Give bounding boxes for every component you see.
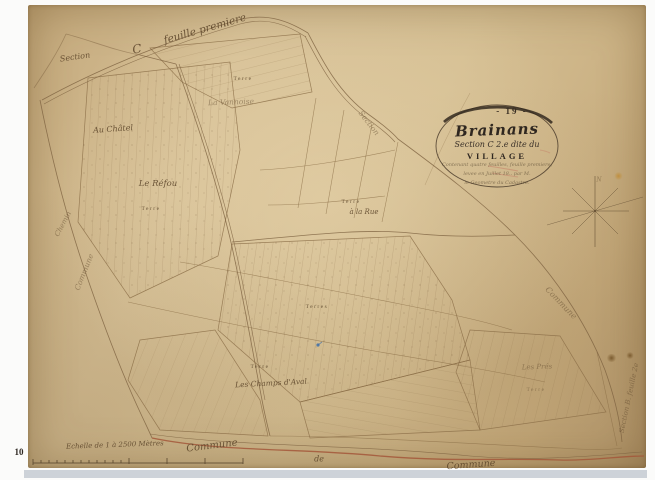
scale-bar (33, 458, 243, 465)
parcel-label-terre: Terre (250, 364, 269, 370)
cartouche-note-line: le Geometre du Cadastre. (427, 180, 567, 188)
parcel-label-terre: Terre (526, 387, 545, 393)
parcel-label-terre: Terre (233, 76, 252, 82)
cartouche-section-line: Section C 2.e dite du (427, 140, 567, 149)
label-lieu-dit-la-vannoise: La Vannoise (208, 97, 254, 108)
scanned-cadastral-map: Section C feuille premiere - 19 - Braina… (0, 0, 655, 480)
map-linework (0, 0, 655, 480)
cartouche-commune-name: Brainans (427, 119, 568, 142)
strip-parcel-fields (78, 34, 606, 438)
label-lieu-dit-a-la-rue: à la Rue (350, 208, 379, 216)
archive-number-stamp: 10 (15, 447, 24, 457)
cartouche-note-line: Contenant quatre feuilles, feuille premi… (427, 162, 567, 170)
label-lieu-dit-les-pres: Les Prés (522, 362, 553, 371)
label-de-bottom: de (314, 455, 324, 464)
sheet-page-number: - 19 - (496, 106, 528, 116)
cartouche-note-line: levee en Juillet 18.. par M. (427, 171, 567, 179)
label-lieu-dit-le-refou: Le Réfou (139, 179, 178, 189)
compass-north-letter: N (596, 177, 601, 184)
parcel-label-terre: Terre (341, 199, 360, 205)
cartouche-title-block: Brainans Section C 2.e dite du VILLAGE C… (427, 121, 567, 187)
parcel-label-terres: Terres (306, 304, 329, 310)
cartouche-place-name: VILLAGE (427, 151, 567, 161)
parcel-label-terre: Terre (141, 206, 160, 212)
